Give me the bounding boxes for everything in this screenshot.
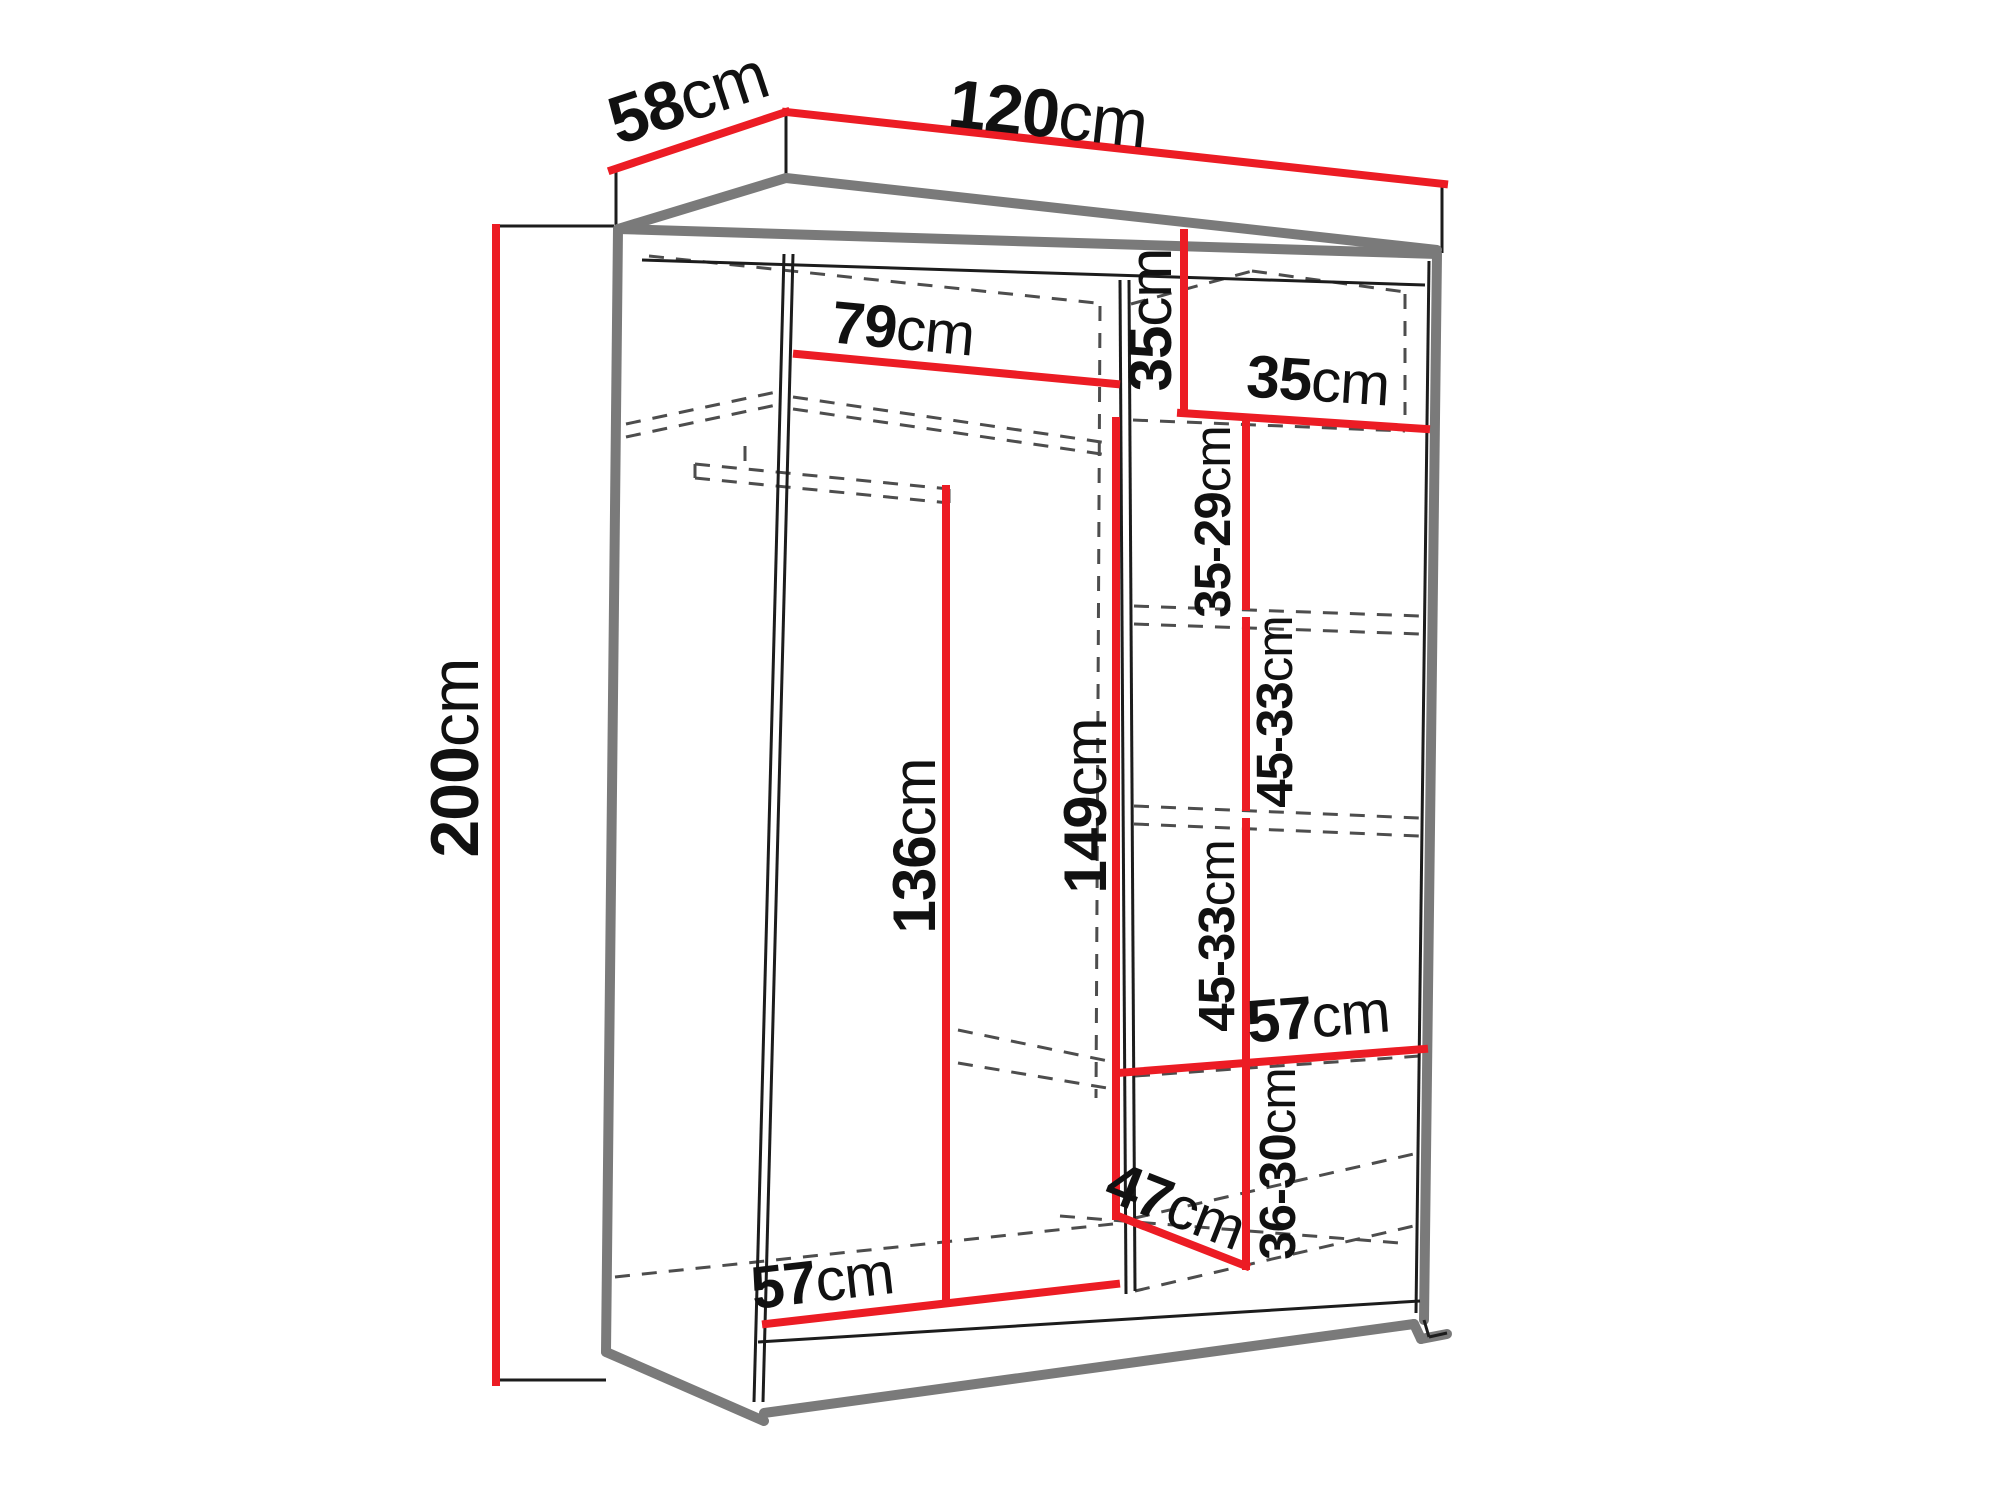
dim-label-136: 136cm (881, 758, 948, 933)
dim-label-36-30: 36-30cm (1249, 1068, 1306, 1259)
dashed-shelf-3-left (958, 1030, 1113, 1062)
dashed-top-shelf-back-edge (793, 409, 1108, 455)
dim-label-height-200: 200cm (417, 658, 493, 857)
base-left-shadow-edge (606, 1352, 764, 1421)
dashed-shelf-3-left (958, 1063, 1113, 1089)
dashed-shelf-2 (1134, 824, 1420, 836)
dim-label-45-33-lower: 45-33cm (1188, 840, 1245, 1031)
dim-label-45-33-upper: 45-33cm (1246, 616, 1303, 807)
partition-front-edge (1120, 280, 1126, 1294)
dim-label-35-29: 35-29cm (1184, 426, 1241, 617)
diagram-canvas: 58cm 120cm 200cm 79cm 35cm 35cm 35-29cm … (0, 0, 2000, 1500)
dashed-hanging-rod (695, 478, 949, 503)
dim-label-width-120: 120cm (945, 65, 1151, 162)
dim-label-47: 47cm (1097, 1148, 1254, 1262)
dim-label-35-vertical: 35cm (1117, 249, 1184, 392)
opening-top-inner-edge (642, 260, 1425, 285)
dashed-hanging-rod (695, 464, 949, 489)
dashed-shelf-side-edge (626, 404, 781, 437)
dim-label-149: 149cm (1052, 718, 1119, 893)
dim-label-79: 79cm (829, 288, 977, 368)
dashed-top-shelf-back-edge (793, 397, 1108, 443)
partition-front-edge (1129, 280, 1135, 1291)
carcass-left-front-edge (606, 229, 618, 1352)
base-bottom-shadow-edge (764, 1324, 1414, 1413)
dashed-shelf-1 (1134, 606, 1420, 616)
wardrobe-dimension-diagram: 58cm 120cm 200cm 79cm 35cm 35cm 35-29cm … (0, 0, 2000, 1500)
dashed-partition-back-edge (1096, 306, 1100, 1098)
dim-label-57-right: 57cm (1244, 977, 1392, 1055)
carcass-left-top-depth-edge (618, 178, 786, 229)
dim-label-35-horizontal: 35cm (1245, 342, 1392, 418)
